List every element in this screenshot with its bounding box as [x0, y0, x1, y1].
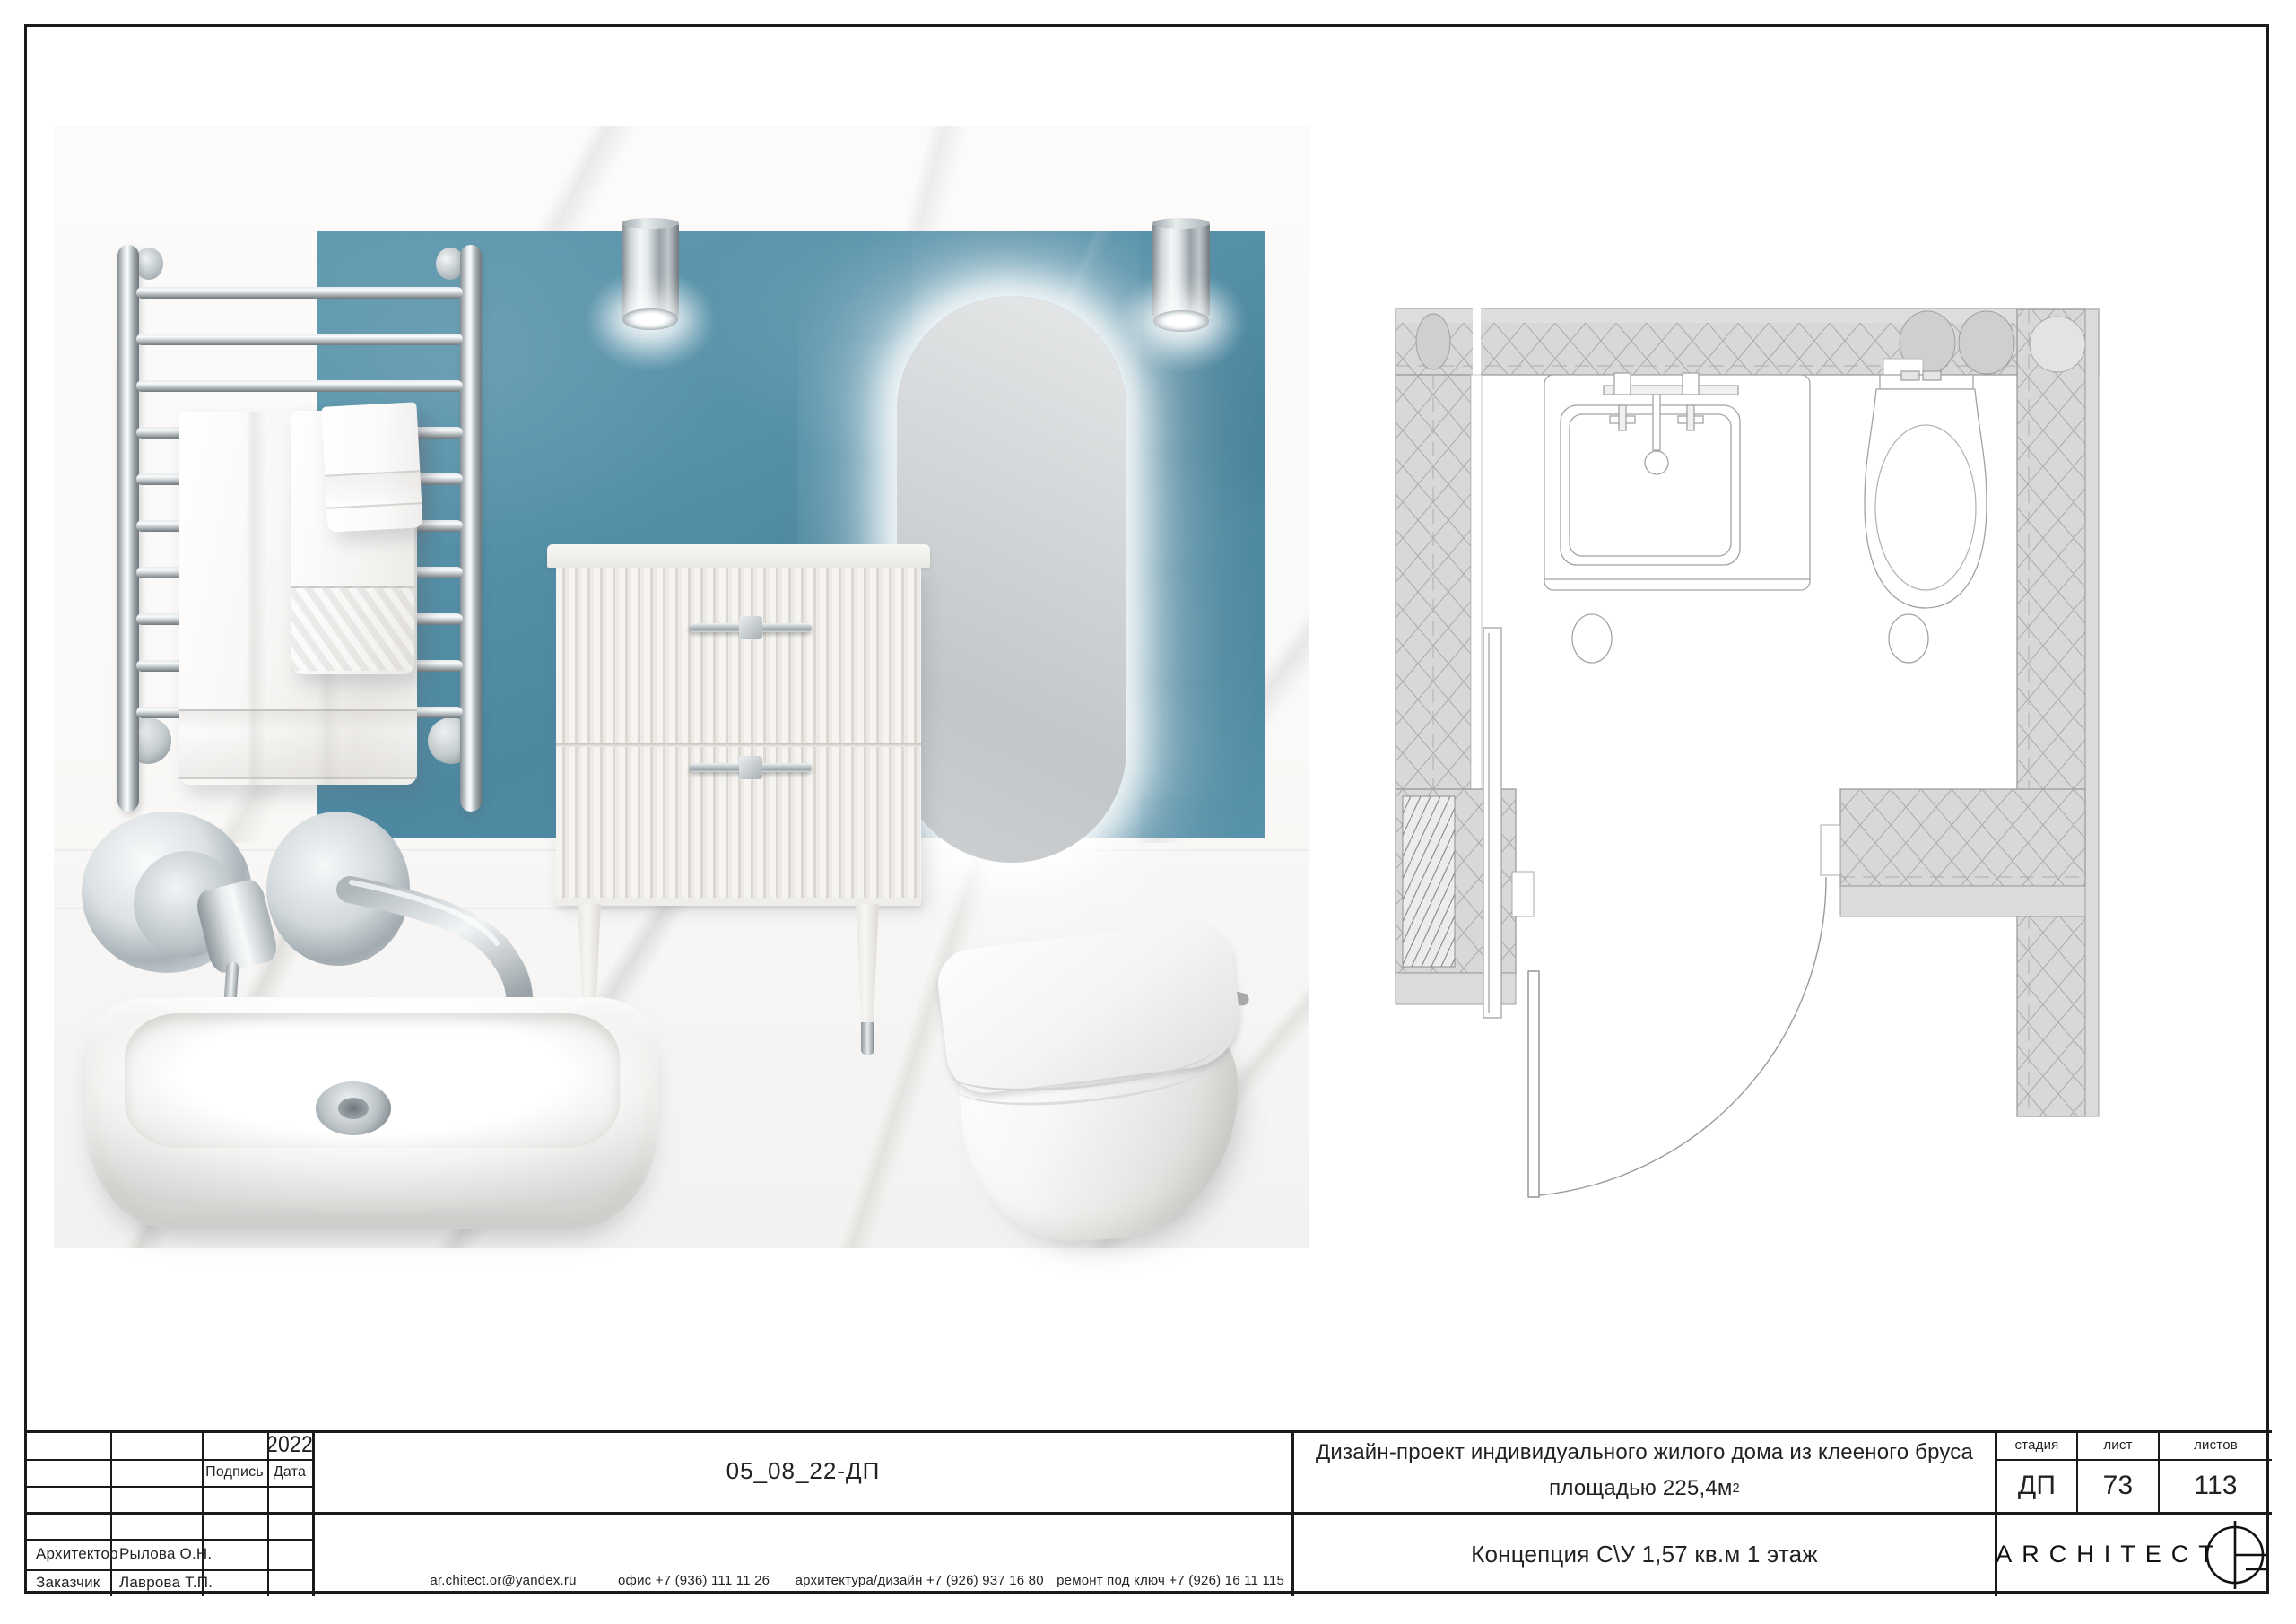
design-project-sheet: 2022 Подпись Дата Архитектор Рылова О.Н.… [0, 0, 2296, 1624]
sheet-frame [24, 24, 2269, 1594]
